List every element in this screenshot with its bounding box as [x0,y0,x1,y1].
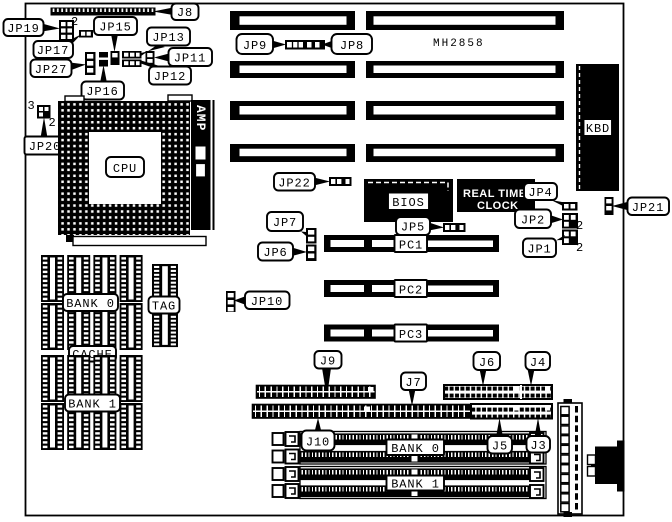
svg-text:JP9: JP9 [243,39,267,53]
svg-text:JP27: JP27 [35,63,67,77]
svg-text:JP11: JP11 [174,52,206,66]
svg-text:TAG: TAG [152,300,176,314]
svg-text:JP8: JP8 [340,39,364,53]
svg-text:BANK 0: BANK 0 [66,297,115,311]
svg-text:JP15: JP15 [99,21,131,35]
svg-text:JP7: JP7 [273,216,297,230]
svg-text:PC1: PC1 [399,239,423,253]
svg-text:CPU: CPU [113,162,137,176]
svg-text:JP5: JP5 [401,221,425,235]
svg-text:J3: J3 [530,439,546,453]
svg-text:JP10: JP10 [251,295,283,309]
svg-text:J4: J4 [530,356,546,370]
svg-text:2: 2 [48,116,56,130]
svg-text:JP22: JP22 [278,177,310,191]
svg-text:J5: J5 [492,440,508,454]
svg-text:JP16: JP16 [86,85,118,99]
svg-text:BANK 1: BANK 1 [391,478,440,492]
svg-text:KBD: KBD [586,122,610,136]
svg-text:BIOS: BIOS [392,196,424,210]
svg-text:AMP: AMP [193,105,208,131]
svg-text:J7: J7 [405,376,421,390]
svg-text:BANK 0: BANK 0 [391,442,440,456]
svg-text:JP2: JP2 [521,214,545,228]
svg-text:PC2: PC2 [399,284,423,298]
svg-text:J10: J10 [306,436,330,450]
svg-text:BANK 1: BANK 1 [68,398,117,412]
svg-text:2: 2 [71,15,79,29]
svg-text:JP17: JP17 [37,44,69,58]
svg-text:J6: J6 [479,356,495,370]
svg-text:REAL TIME: REAL TIME [463,188,527,200]
svg-text:CLOCK: CLOCK [477,200,519,212]
svg-text:J9: J9 [320,355,336,369]
svg-text:JP12: JP12 [154,70,186,84]
svg-text:JP6: JP6 [263,246,287,260]
svg-text:2: 2 [576,241,584,255]
svg-text:JP13: JP13 [152,31,184,45]
svg-text:MH2858: MH2858 [433,38,485,50]
svg-text:JP21: JP21 [632,201,664,215]
svg-text:3: 3 [27,99,35,113]
svg-text:JP19: JP19 [7,22,39,36]
svg-text:PC3: PC3 [399,328,423,342]
svg-text:JP20: JP20 [29,140,61,154]
svg-text:JP1: JP1 [527,243,551,257]
svg-text:J8: J8 [177,6,193,20]
svg-text:JP4: JP4 [528,186,552,200]
